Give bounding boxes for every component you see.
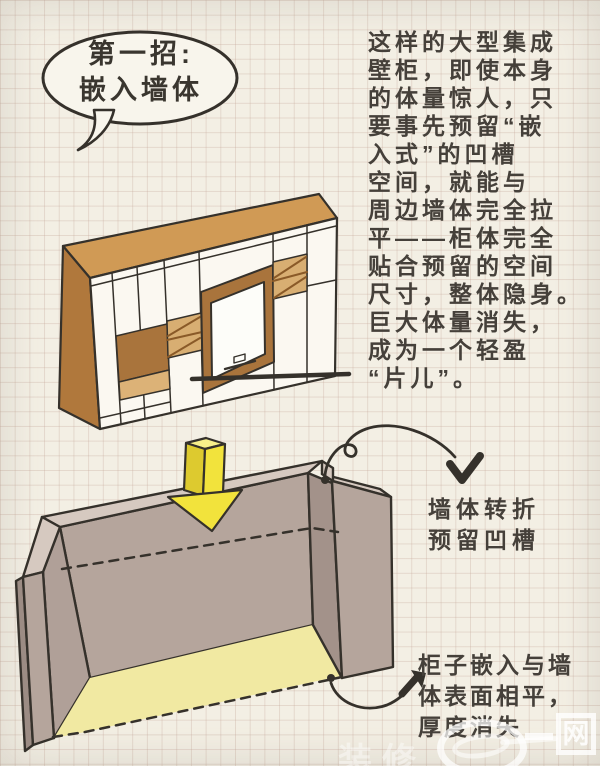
- paragraph-line: 平——柜体完全: [368, 224, 600, 252]
- cabinet-note-line2: 体表面相平，: [418, 681, 574, 712]
- cabinet-note-line3: 厚度消失: [418, 712, 574, 743]
- comic-page: 第一招: 嵌入墙体 这样的大型集成 壁柜，即使本身 的体量惊人，只 要事先预留“…: [0, 0, 600, 766]
- arrow-left-face: [184, 443, 205, 496]
- paragraph-line: 巨大体量消失，: [368, 308, 600, 336]
- paragraph-line: 要事先预留“嵌: [368, 112, 600, 140]
- paragraph-line: 这样的大型集成: [368, 28, 600, 56]
- wall-note-line1: 墙体转折: [428, 494, 540, 525]
- paragraph-line: 贴合预留的空间: [368, 252, 600, 280]
- wall-note-line2: 预留凹槽: [428, 525, 540, 556]
- bubble-title-line2: 嵌入墙体: [40, 72, 242, 108]
- cabinet-note: 柜子嵌入与墙 体表面相平， 厚度消失: [418, 650, 574, 743]
- paragraph-line: 周边墙体完全拉: [368, 196, 600, 224]
- cabinet-left-panels: [116, 324, 170, 400]
- paragraph-line: 尺寸，整体隐身。: [368, 280, 600, 308]
- cabinet-illustration: [42, 186, 372, 436]
- paragraph-line: 成为一个轻盈: [368, 336, 600, 364]
- paragraph-line: “片儿”。: [368, 364, 600, 392]
- bubble-title: 第一招: 嵌入墙体: [40, 36, 242, 108]
- callout-curve-top: [325, 426, 455, 475]
- bubble-title-line1: 第一招:: [40, 36, 242, 72]
- callout-dot-notch: [321, 476, 329, 484]
- cabinet-note-line1: 柜子嵌入与墙: [418, 650, 574, 681]
- paragraph-line: 壁柜，即使本身: [368, 56, 600, 84]
- description-paragraph: 这样的大型集成 壁柜，即使本身 的体量惊人，只 要事先预留“嵌 入式”的凹槽 空…: [368, 28, 600, 392]
- cabinet-shelf-left: [167, 313, 202, 358]
- callout-arrowhead-bottom: [402, 676, 418, 694]
- callout-arrowhead-top: [450, 456, 480, 480]
- paragraph-line: 的体量惊人，只: [368, 84, 600, 112]
- callout-dot-floor: [327, 674, 335, 682]
- right-wall-outer-face: [332, 481, 393, 678]
- cabinet-body: [59, 194, 337, 429]
- paragraph-line: 入式”的凹槽: [368, 140, 600, 168]
- wall-note: 墙体转折 预留凹槽: [428, 494, 540, 556]
- paragraph-line: 空间，就能与: [368, 168, 600, 196]
- arrow-front-face: [203, 444, 225, 496]
